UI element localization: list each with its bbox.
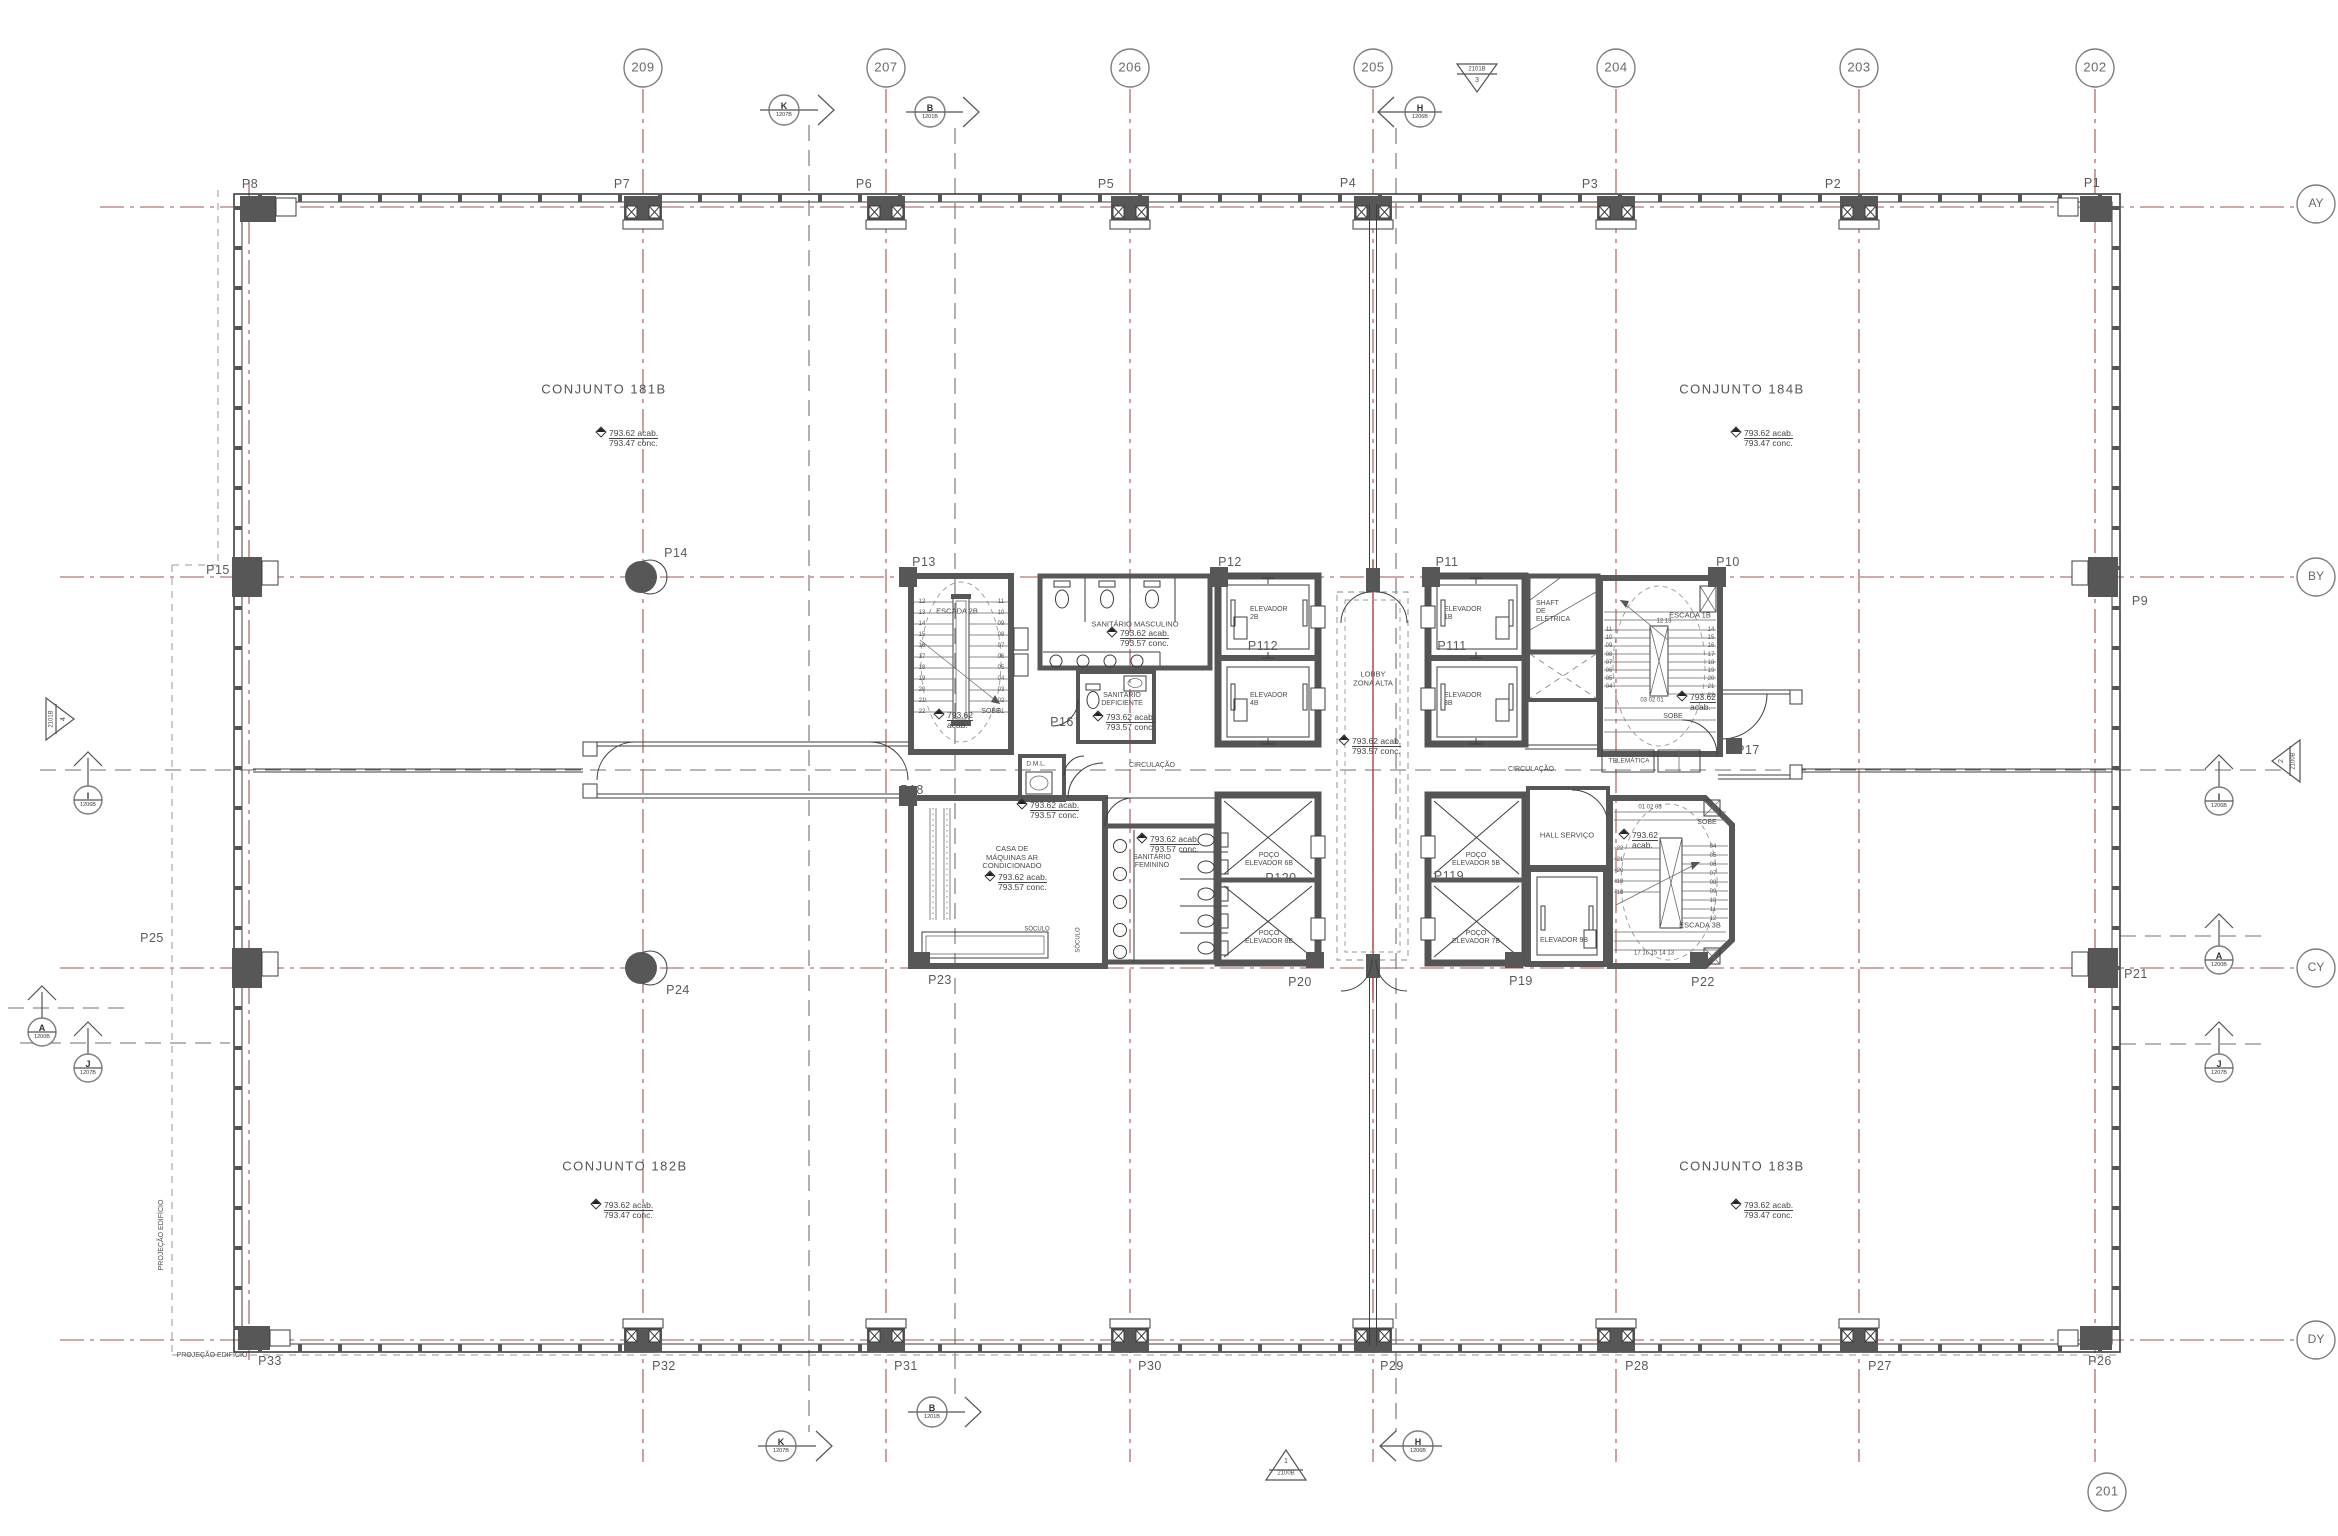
sanitario-feminino (1105, 798, 1228, 962)
room-label-poco-7b: POÇO ELEVADOR 7B (1452, 930, 1500, 946)
column-tag-p14: P14 (664, 546, 688, 560)
room-label-escada-1b: ESCADA 1B (1669, 612, 1711, 621)
column-tag-p111: P111 (1437, 639, 1466, 653)
risers-escada-3b-top: 01 02 03 (1638, 805, 1661, 812)
label-sobe-1b: SOBE (1663, 713, 1682, 721)
section-marker-a-right: A1200B (2211, 952, 2227, 969)
column-tag-p22: P22 (1691, 975, 1715, 989)
note-projecao-bottom: PROJEÇÃO EDIFÍCIO (177, 1352, 248, 1360)
note-projecao-vertical: PROJEÇÃO EDIFÍCIO (158, 1200, 166, 1271)
column-tag-p8: P8 (242, 177, 258, 191)
column-tag-p33: P33 (258, 1354, 282, 1368)
section-marker-k-top: K1207B (776, 102, 792, 119)
level-marker-casa-maq: 793.62 acab.793.57 conc. (986, 872, 1047, 892)
room-label-elevador-3b: ELEVADOR 3B (1444, 692, 1482, 708)
column-tag-p18: P18 (900, 783, 924, 797)
risers-escada-1b-bottom: 03 02 01 (1640, 698, 1663, 705)
column-tag-p12: P12 (1218, 555, 1242, 569)
partitions (253, 204, 2112, 1346)
column-tag-p10: P10 (1716, 555, 1740, 569)
unit-label-183b: CONJUNTO 183B (1679, 1160, 1804, 1175)
level-marker-181b: 793.62 acab.793.47 conc. (597, 428, 658, 448)
column-tag-p5: P5 (1098, 177, 1114, 191)
room-label-poco-8b: POÇO ELEVADOR 8B (1245, 930, 1293, 946)
grid-bubble-dy: DY (2308, 1333, 2325, 1347)
room-label-elevador-4b: ELEVADOR 4B (1250, 692, 1288, 708)
risers-escada-3b-left: 22 21 20 19 18 (1617, 844, 1624, 899)
grid-bubble-209: 209 (631, 61, 654, 76)
grid-bubble-205: 205 (1361, 61, 1384, 76)
level-marker-masculino: 793.62 acab.793.57 conc. (1108, 628, 1169, 648)
column-tag-p2: P2 (1825, 177, 1841, 191)
level-marker-deficiente: 793.62 acab.793.57 conc. (1094, 712, 1155, 732)
room-label-sanitario-feminino: SANITÁRIO FEMININO (1133, 854, 1171, 870)
column-tag-p119: P119 (1434, 869, 1464, 883)
unit-label-181b: CONJUNTO 181B (541, 383, 666, 398)
grid-bubbles (624, 49, 2335, 1511)
room-label-circulacao-left: CIRCULAÇÃO (1129, 762, 1175, 770)
column-tag-p15: P15 (206, 563, 230, 577)
shaft-eletrica (1528, 576, 1598, 700)
column-tag-p7: P7 (614, 177, 630, 191)
grid-bubble-cy: CY (2308, 961, 2325, 975)
column-tag-p20: P20 (1288, 975, 1312, 989)
grid-bubble-202: 202 (2083, 61, 2106, 76)
room-label-telematica: TELEMÁTICA (1609, 757, 1650, 764)
section-marker-i-right: I1206B (2211, 793, 2227, 810)
column-tag-p32: P32 (652, 1359, 676, 1373)
room-label-lobby: LOBBY ZONA ALTA (1353, 670, 1393, 687)
column-tag-p29: P29 (1380, 1359, 1404, 1373)
column-tag-p4: P4 (1340, 176, 1356, 190)
elevator-block-2b-4b (1218, 576, 1325, 744)
core (583, 567, 1802, 991)
column-tag-p27: P27 (1868, 1359, 1892, 1373)
column-tag-p21: P21 (2124, 967, 2148, 981)
facade-columns (232, 196, 2118, 1352)
column-tag-p30: P30 (1138, 1359, 1162, 1373)
level-marker-feminino: 793.62 acab.793.57 conc. (1138, 834, 1199, 854)
level-marker-182b: 793.62 acab.793.47 conc. (592, 1200, 653, 1220)
unit-label-184b: CONJUNTO 184B (1679, 383, 1804, 398)
detail-triangle-left-code: 2101B (49, 710, 56, 727)
grid-bubble-by: BY (2308, 570, 2324, 584)
column-tag-p13: P13 (912, 555, 936, 569)
column-tag-p31: P31 (894, 1359, 918, 1373)
room-label-elevador-2b: ELEVADOR 2B (1250, 606, 1288, 622)
column-tag-p112: P112 (1248, 639, 1278, 653)
grid-bubble-201: 201 (2095, 1485, 2118, 1500)
level-marker-escada-2b: 793.62acab. (935, 710, 973, 730)
detail-triangle-right-code: 2100B (2291, 752, 2298, 769)
detail-triangle-bottom-code: 2100B (1277, 1471, 1294, 1478)
room-label-elevador-9b: ELEVADOR 9B (1540, 937, 1588, 945)
section-marker-b-top: B1201B (922, 104, 938, 121)
room-label-shaft-eletrica: SHAFT DE ELÉTRICA (1536, 600, 1570, 624)
detail-triangle-top-num: 3 (1475, 77, 1479, 85)
level-marker-casa-maq-top: 793.62 acab.793.57 conc. (1018, 800, 1079, 820)
column-tag-p19: P19 (1509, 974, 1533, 988)
level-marker-escada-3b: 793.62acab. (1620, 830, 1658, 850)
section-marker-b-bottom: B1201B (924, 1404, 940, 1421)
room-label-poco-6b: POÇO ELEVADOR 6B (1245, 852, 1293, 868)
room-label-circulacao-right: CIRCULAÇÃO (1508, 766, 1554, 774)
detail-triangle-left-num: 4 (60, 717, 68, 721)
label-soculo-h: SÓCULO (1024, 927, 1049, 934)
floor-plan-canvas: 209 207 206 205 204 203 202 201 AY BY CY… (0, 0, 2338, 1536)
column-tag-p6: P6 (856, 177, 872, 191)
grid-bubble-207: 207 (874, 61, 897, 76)
grid-bubble-206: 206 (1118, 61, 1141, 76)
section-marker-h-bottom: H1206B (1410, 1438, 1426, 1455)
room-label-casa-maquinas: CASA DE MÁQUINAS AR CONDICIONADO (982, 845, 1041, 871)
room-label-escada-2b: ESCADA 2B (936, 608, 978, 617)
room-label-dml: D.M.L. (1026, 760, 1045, 767)
section-marker-j-right: J1207B (2211, 1060, 2227, 1077)
column-tag-p28: P28 (1625, 1359, 1649, 1373)
section-marker-j-left: J1207B (80, 1060, 96, 1077)
column-tag-p16: P16 (1050, 715, 1074, 729)
level-marker-lobby: 793.62 acab.793.57 conc. (1340, 736, 1401, 756)
risers-escada-3b-bottom: 17 16 15 14 13 (1634, 951, 1674, 958)
grid-bubble-204: 204 (1604, 61, 1627, 76)
grid-bubble-ay: AY (2308, 197, 2323, 211)
section-marker-i-left: I1206B (80, 792, 96, 809)
risers-escada-1b-left: 11 10 09 08 07 06 05 04 (1606, 626, 1613, 692)
grid-bubble-203: 203 (1847, 61, 1870, 76)
detail-triangle-bottom-num: 1 (1284, 1458, 1288, 1466)
room-label-poco-5b: POÇO ELEVADOR 5B (1452, 852, 1500, 868)
stair-escada-1b (1600, 578, 1720, 755)
risers-escada-1b-top: 12 13 (1656, 619, 1671, 626)
section-marker-k-bottom: K1207B (773, 1438, 789, 1455)
column-tag-p25: P25 (140, 931, 164, 945)
room-label-elevador-1b: ELEVADOR 1B (1444, 606, 1482, 622)
column-tag-p120: P120 (1265, 871, 1296, 885)
detail-triangle-right-num: 2 (2278, 759, 2286, 763)
round-columns (625, 560, 667, 985)
risers-escada-2b-right: 11 10 09 08 07 06 05 04 03 02 01 (998, 597, 1005, 718)
detail-triangle-top-code: 2101B (1468, 67, 1485, 74)
building-shell (234, 194, 2120, 1352)
column-tag-p11: P11 (1436, 555, 1459, 569)
level-marker-183b: 793.62 acab.793.47 conc. (1732, 1200, 1793, 1220)
column-tag-p17: P17 (1736, 743, 1760, 757)
column-tag-p9: P9 (2132, 594, 2148, 608)
risers-escada-2b-left: 12 13 14 15 16 17 18 19 20 21 22 (919, 597, 926, 718)
grid-axis-lines (60, 89, 2297, 1462)
label-soculo-v: SÓCULO (1076, 927, 1083, 952)
level-marker-184b: 793.62 acab.793.47 conc. (1732, 428, 1793, 448)
column-tag-p24: P24 (666, 983, 690, 997)
column-tag-p1: P1 (2084, 176, 2100, 190)
room-label-hall-servico: HALL SERVIÇO (1540, 832, 1594, 841)
section-marker-h-top: H1206B (1412, 104, 1428, 121)
section-marker-a-left: A1200B (34, 1024, 50, 1041)
column-tag-p23: P23 (928, 973, 952, 987)
label-sobe-3b: SOBE (1697, 819, 1716, 827)
room-label-sanitario-deficiente: SANITÁRIO DEFICIENTE (1101, 692, 1143, 708)
unit-label-182b: CONJUNTO 182B (562, 1160, 687, 1175)
risers-escada-1b-right: 14 15 16 17 18 19 20 21 22 (1708, 626, 1715, 700)
column-tag-p26: P26 (2088, 1354, 2112, 1368)
column-tag-p3: P3 (1582, 177, 1598, 191)
risers-escada-3b-right: 04 05 06 07 08 09 10 11 12 (1710, 843, 1717, 924)
elevator-block-1b-3b (1421, 576, 1525, 744)
section-cut-lines (8, 125, 2290, 1432)
